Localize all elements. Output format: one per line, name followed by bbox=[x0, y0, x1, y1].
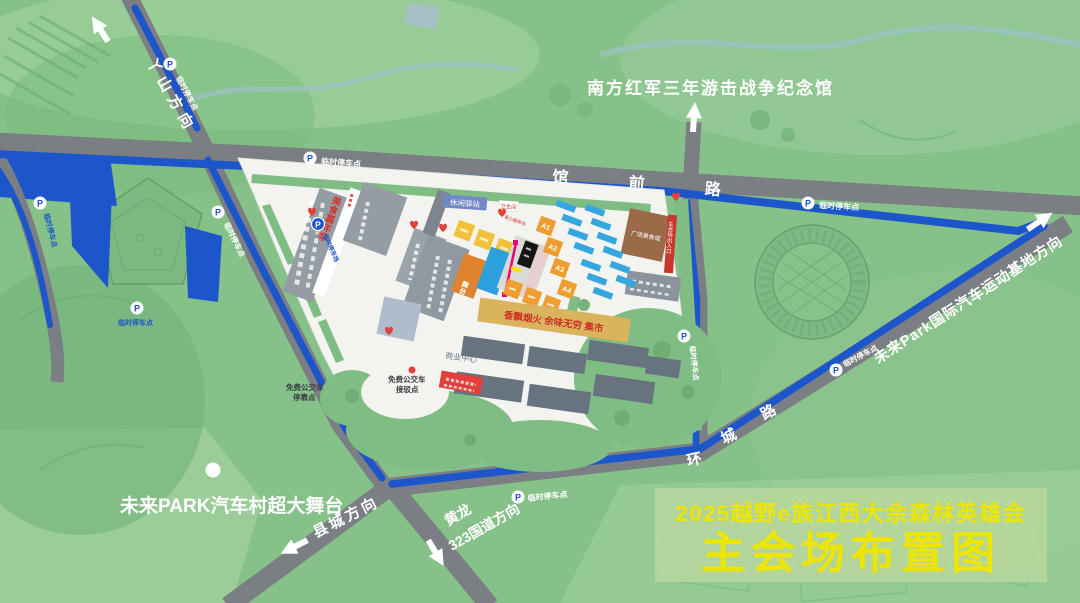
memorial-label: 南方红军三年游击战争纪念馆 bbox=[587, 78, 834, 98]
map-canvas: A1 A2 A3 A4 休闲驿站 卫生间 美食嘉年华 广场美食城 bbox=[0, 0, 1080, 603]
temp-point-label: 临时停车点 bbox=[118, 318, 153, 327]
venue-layout-map: A1 A2 A3 A4 休闲驿站 卫生间 美食嘉年华 广场美食城 bbox=[0, 0, 1080, 603]
p-letter: P bbox=[833, 366, 839, 376]
temp-point-label: 临时停车点 bbox=[819, 200, 859, 212]
bus-shuttle-label-line1: 免费公交车 bbox=[388, 374, 426, 384]
bus-stop-label-line1: 免费公交车 bbox=[286, 382, 324, 392]
shuttle-dot bbox=[409, 367, 416, 374]
title-block: 2025越野e族江西大余森林英雄会 主会场布置图 bbox=[655, 488, 1047, 582]
round-stadium bbox=[755, 225, 869, 339]
p-letter: P bbox=[315, 220, 321, 230]
p-letter: P bbox=[681, 332, 687, 342]
p-letter: P bbox=[167, 60, 173, 70]
p-letter: P bbox=[805, 199, 811, 209]
p-letter: P bbox=[37, 199, 43, 209]
bus-stop-label-line2: 停靠点 bbox=[293, 392, 316, 402]
bus-shuttle-label-line2: 接驳点 bbox=[396, 384, 419, 394]
p-letter: P bbox=[215, 208, 221, 218]
map-title: 主会场布置图 bbox=[701, 529, 1001, 578]
event-title: 2025越野e族江西大余森林英雄会 bbox=[676, 501, 1027, 526]
mega-stage-label: 未来PARK汽车村超大舞台 bbox=[119, 494, 343, 517]
p-letter: P bbox=[307, 154, 313, 164]
p-letter: P bbox=[515, 493, 521, 503]
p-letter: P bbox=[134, 304, 140, 314]
mega-stage-dot bbox=[206, 463, 221, 478]
building-court bbox=[376, 296, 421, 341]
